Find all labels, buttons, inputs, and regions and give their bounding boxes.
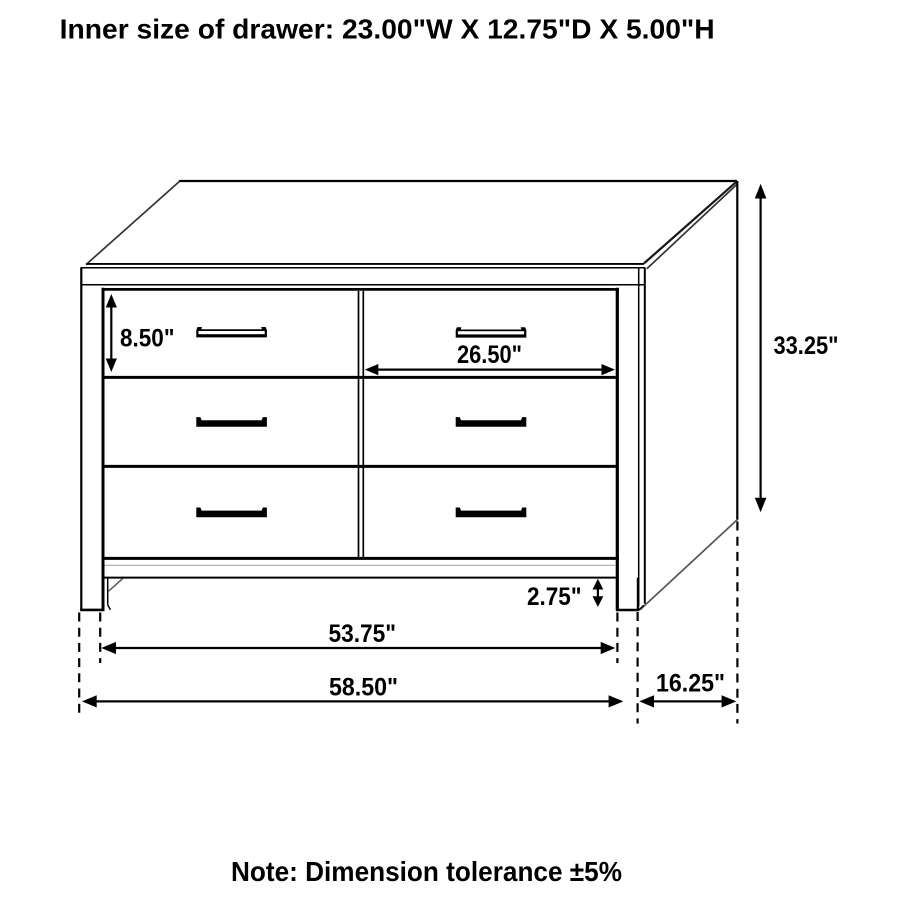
svg-text:8.50": 8.50" xyxy=(120,325,175,353)
svg-text:16.25": 16.25" xyxy=(656,669,725,697)
svg-text:26.50": 26.50" xyxy=(457,341,522,369)
svg-text:53.75": 53.75" xyxy=(329,620,397,648)
svg-text:58.50": 58.50" xyxy=(329,673,398,701)
svg-text:33.25": 33.25" xyxy=(774,332,839,360)
svg-text:Inner size of drawer: 23.00"W: Inner size of drawer: 23.00"W X 12.75"D … xyxy=(60,14,715,45)
svg-text:2.75": 2.75" xyxy=(527,583,582,611)
svg-text:Note: Dimension tolerance ±5%: Note: Dimension tolerance ±5% xyxy=(231,856,622,887)
